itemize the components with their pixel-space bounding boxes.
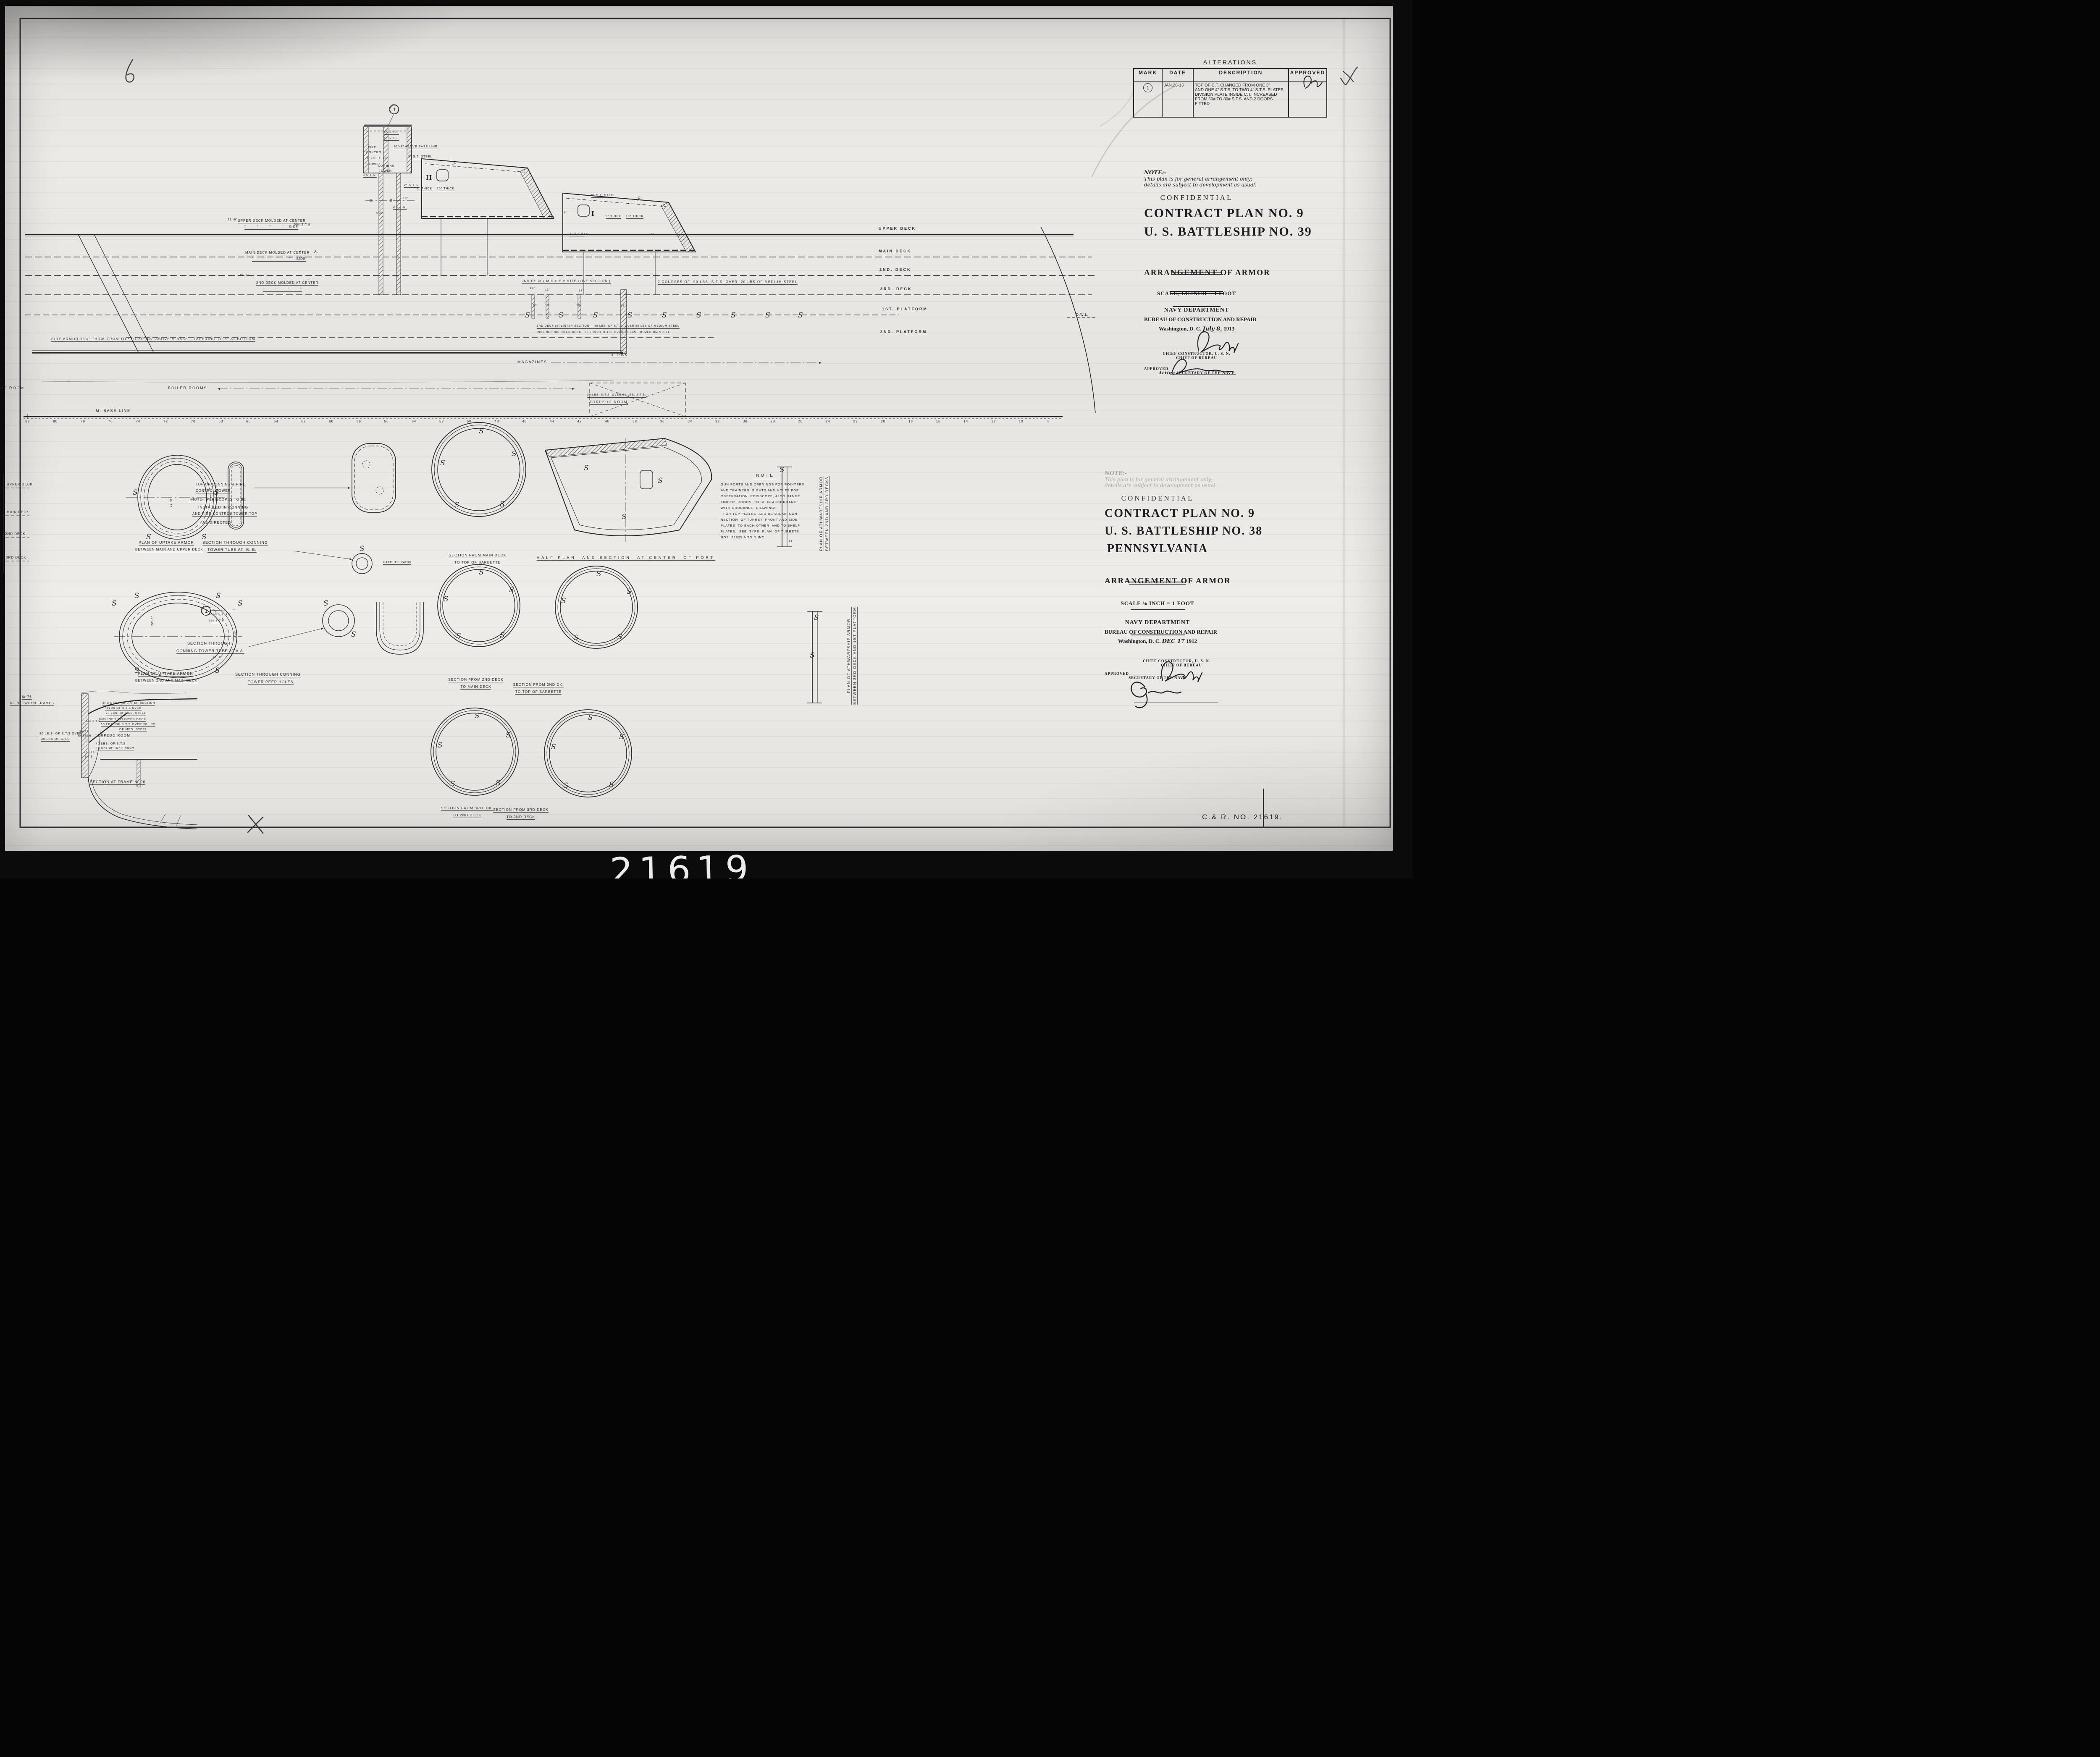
handwritten-x-mark [248,816,263,833]
frame-number: 44 [550,420,554,423]
annotation-label: B. [390,199,394,202]
athwartship-plan-label: PLAN OF ATHWARTSHIP ARMORBETWEEN 3RD DEC… [847,607,858,705]
annotation-label: 3RD DECK (SPLINTER SECTION) 40 LBS. OF S… [537,325,680,329]
alterations-column-header: DESCRIPTION [1193,68,1289,82]
frame-number: 18 [908,420,913,423]
annotation-label: 30 LB.S. OF S.T.S OVER [39,732,82,736]
section-break-symbol: S [450,780,455,788]
place-date: Washington, D. C. DEC 17 1912 [1105,638,1210,645]
annotation-label: 80# S.T.S. [209,620,225,623]
frame-number: 60 [329,420,333,423]
plan-number: CONTRACT PLAN NO. 9 [1144,206,1249,220]
annotation-label: 40 LBS [84,752,95,754]
section-break-symbol: S [731,311,736,320]
alteration-approved [1289,82,1327,117]
annotation-label: TORPEDO ROOM [95,734,131,738]
barbette-section-circle [434,425,523,514]
bureau: BUREAU OF CONSTRUCTION AND REPAIR [1105,629,1210,635]
annotation-label: UPPER DECK MOLDED AT CENTER [238,219,306,223]
annotation-label: " " " " [263,288,302,292]
section-break-symbol: S [696,311,701,320]
deck-label: 1ST. PLATFORM [882,307,928,311]
annotation-label: HATCHES 24x30 [383,561,411,565]
annotation-label: SECTION FROM MAIN DECK [449,553,507,558]
frame-number: 76 [108,420,113,423]
alteration-mark: 1 [1134,82,1162,117]
annotation-label: NT BETWEEN FRAMES [10,702,54,706]
annotation-label: B. [370,199,374,202]
frame-number: 24 [826,420,830,423]
section-break-symbol: S [593,311,598,320]
annotation-label: SIDE ARMOR 13½" THICK FROM TOP TO 26'-4⅞… [51,338,255,342]
annotation-label: BOILER ROOMS [168,386,207,390]
annotation-label: " " " " SIDE [244,226,298,230]
annotation-label: -NOTE- PERISCOPES TO BE [190,498,246,502]
frame-number: 22 [853,420,858,423]
note-line: PLATES. SEE TYPE PLAN OF TURRETS [721,529,810,535]
frame-number: 56 [384,420,389,423]
annotation-label: TO 2ND DECK [507,815,535,820]
annotation-label: 4½" [576,304,582,307]
note-line: GUN PORTS AND OPENINGS FOR POINTERS [721,482,810,488]
annotation-label: 9" THICK [417,187,432,191]
barbette-section-circle [544,710,632,797]
section-break-symbol: S [564,781,569,790]
drawing-linework: SSSSSSSSSSSSSSSSSSSSSSSSSSSSSSSSSSSSSSSS… [0,0,1413,878]
department: NAVY DEPARTMENT [1144,307,1249,314]
barbette-section-circle [433,711,516,793]
alterations-title: ALTERATIONS [1133,59,1327,66]
place-date: Washington, D. C. July 8, 1913 [1144,325,1249,332]
barbette-section-circle [558,569,635,646]
annotation-label: 60 LBS. OF S.T.S OVER 20 LBS [101,723,155,727]
annotation-label: UPPER DECK [7,483,33,486]
ship-number: U. S. BATTLESHIP NO. 38 [1105,524,1210,538]
annotation-label: AND FIRE CONTROL TOWER TOP [192,512,257,517]
annotation-label: 9" THICK [606,215,621,219]
note-line: AND TRAINERS SIGHTS AND HOLES FOR [721,488,810,493]
annotation-label: 2ND DECK [5,532,25,536]
barbette-section-circle [549,715,627,792]
barbette-section-circle [440,567,517,644]
section-break-symbol: S [798,311,803,320]
annotation-label: DYNAMO ROOM [0,386,24,390]
annotation-label: 3 S.T.S. [363,174,377,178]
frame-number: 10 [1019,420,1024,423]
approved-role: Acting SECRETARY OF THE NAVY [1144,371,1249,375]
frame-number: 46 [522,420,527,423]
barbette-section-circle [555,566,638,648]
annotation-label: 30 LBS. S.T.S. OVER 30 LBS. S.T.S. [587,394,646,398]
annotation-label: OF MED. STEEL [119,728,147,732]
annotation-label: 2ND DECK ( MIDDLE PROTECTIVE SECTION ) [522,280,611,284]
note-title: NOTE [753,474,778,479]
annotation-label: TO TOP OF BARBETTE [515,690,562,695]
drawing-title: ARRANGEMENT OF ARMOR [1144,268,1249,278]
section-break-symbol: S [551,743,556,751]
barbette-section-circle [547,712,629,795]
alteration-description: TOP OF C.T. CHANGED FROM ONE 3"AND ONE 4… [1193,82,1289,117]
annotation-label: 5'-0" [376,212,383,215]
frame-number: 36 [660,420,665,423]
annotation-label: CONNING TOWER TUBE AT A.A. [176,649,244,654]
annotation-label: 13" [789,540,794,543]
annotation-label: TORPEDO ROOM [590,401,628,405]
section-break-symbol: S [216,592,221,600]
annotation-label: 2ND DECK MOLDED AT CENTER [256,281,318,286]
annotation-label: 4½" [545,304,551,307]
reference-mark-circle: 1 [202,606,211,616]
section-break-symbol: S [810,651,815,660]
annotation-label: INSTALLED IN CONNING [198,506,248,510]
annotation-label: IN WAY OF TORP. ROOM [97,747,134,750]
annotation-label: 4" S.T.S. [384,131,399,135]
annotation-label: 13" [579,290,584,292]
note-line: NOS. 21625 A TO D INC [721,535,810,540]
section-break-symbol: S [360,545,365,553]
annotation-label: SECTION FROM 2ND DECK [448,678,504,682]
annotation-label: 26'-0" [151,616,154,626]
frame-number: 28 [770,420,775,423]
annotation-label: SECTION THROUGH CONNING [202,541,268,545]
alterations-column-header: DATE [1162,68,1193,82]
annotation-label: SECTION FROM 3RD. DK. [441,806,493,811]
frame-number: 30 [743,420,748,423]
annotation-label: 40'-0" [239,274,249,277]
annotation-label: SECTION THROUGH CONNING [235,673,301,677]
frame-number: 68 [218,420,223,423]
frame-number: 64 [274,420,278,423]
department: NAVY DEPARTMENT [1105,619,1210,626]
section-break-symbol: S [559,311,564,320]
reference-mark-circle: 1 [390,105,399,114]
note-heading: NOTE:- [1144,170,1249,176]
annotation-label: 3RD DECK (SPLINTER SECTION [102,702,155,706]
barbette-section-circle [438,564,520,647]
signature-role: CHIEF CONSTRUCTOR, U. S. N. [1105,659,1210,663]
deck-label: 3RD. DECK [880,287,912,291]
section-break-symbol: S [323,599,328,608]
annotation-label: SECTION THROUGH [187,642,231,646]
section-break-symbol: S [112,599,117,608]
ship-name: PENNSYLVANIA [1105,542,1210,556]
signature-role: CHIEF OF BUREAU [1105,663,1210,667]
annotation-label: PLAN OF UPTAKE ARMOR [138,672,193,677]
note-line: FINDER HOODS, TO BE IN ACCORDANCE [721,499,810,505]
section-break-symbol: S [525,311,530,320]
annotation-label: 2" S.T.S. [570,233,585,236]
note-line: This plan is for general arrangement onl… [1105,477,1210,483]
annotation-label: TOP OF CONNING & FIRE [196,483,246,487]
annotation-label: SECTION FROM 3RD DECK [493,808,549,813]
annotation-label: CONTROL TOWER [196,489,231,493]
barbette-section-circle [436,713,513,790]
frame-number: 82 [26,420,30,423]
annotation-label: 6'-1¼" [209,613,219,616]
approved-role: SECRETARY OF THE NAVY [1105,676,1210,680]
section-break-symbol: S [622,513,627,521]
alterations-column-header: APPROVED [1289,68,1327,82]
annotation-label: M. BASE LINE [96,409,131,413]
annotation-label: 21'-0" [170,497,173,507]
annotation-label: 3RD DECK [6,556,26,559]
annotation-label: INCLINED SPLINTER DECK [99,718,146,722]
annotation-label: CONNING [378,165,395,168]
annotation-label: 30 LBS OF S.T.S [41,738,70,742]
annotation-label: 13" [545,289,550,291]
frame-number: 78 [81,420,85,423]
signature-role: CHIEF CONSTRUCTOR, U. S. N. [1144,351,1249,356]
annotation-label: 13" [530,287,535,290]
annotation-label: TO MAIN DECK [460,685,491,690]
deck-label: 2ND. PLATFORM [880,330,927,334]
approved-label: APPROVED [1105,671,1210,676]
sheet-border [20,18,1390,827]
alterations-column-header: MARK [1134,68,1162,82]
annotation-label: TOWER PEEP HOLES [248,680,294,685]
annotation-label: II [426,174,432,181]
annotation-label: 13" [584,233,589,236]
annotation-label: 6'-1¼" [379,157,388,160]
annotation-label: 50# S.T.S. [294,223,312,227]
annotation-label: MAGAZINES [517,360,547,364]
frame-number: 12 [991,420,996,423]
note-line: FOR TOP PLATES AND DETAIL OF CON- [721,511,810,517]
frame-number: 50 [467,420,472,423]
classification: CONFIDENTIAL [1105,494,1210,503]
annotation-label: 13" [649,233,654,236]
annotation-label: 40LBS OF S.T.S OVER [105,707,142,711]
section-break-symbol: S [496,779,501,787]
annotation-label: TO TOP OF BARBETTE [454,561,501,565]
frame-number: 14 [963,420,968,423]
annotation-label: 6'-1¼" [222,613,231,616]
frame-number: 32 [715,420,720,423]
annotation-label: 4" S.T.S. [384,137,399,141]
annotation-label: D.W.L. [1076,313,1089,317]
annotation-label: AS DIRECTED [202,521,231,525]
section-break-symbol: S [238,599,243,608]
annotation-label: I [591,210,595,218]
section-break-symbol: S [444,595,449,603]
annotation-label: 60# S.T.S [86,721,100,723]
frame-number: 38 [633,420,637,423]
section-break-symbol: S [202,533,207,541]
cr-number: C.& R. NO. 21619. [1202,813,1283,821]
annotation-label: PLAN OF UPTAKE ARMOR [139,541,194,545]
barbette-section-circle [432,422,526,517]
section-break-symbol: S [133,488,138,497]
frame-number: 16 [936,420,941,423]
note-heading: NOTE:- [1105,470,1210,477]
annotation-label: 4'-0" [234,630,237,637]
annotation-label: TOWER TUBE AT B. B. [207,548,257,553]
section-break-symbol: S [765,311,770,320]
annotation-label: SECTION AT FRAME № 26 [90,780,145,785]
frame-number: 72 [163,420,168,423]
bureau: BUREAU OF CONSTRUCTION AND REPAIR [1144,316,1249,323]
barbette-section-circle [431,708,518,795]
annotation-label: MAIN DECK [7,511,29,514]
blueprint-scan-sheet: SSSSSSSSSSSSSSSSSSSSSSSSSSSSSSSSSSSSSSSS… [0,0,1413,878]
annotation-label: A. [314,250,318,254]
annotation-label: BETWEEN MAIN AND UPPER DECK [135,548,203,552]
frame-number: 66 [246,420,251,423]
annotation-label: 10" THICK [437,187,454,191]
annotation-label: 4½" [533,304,538,307]
annotation-label: 20 LBS. OF MED. STEEL [106,712,146,716]
note-line: PLATES TO EACH OTHER AND TO SHELF [721,523,810,529]
section-break-symbol: S [627,311,633,320]
annotation-label: A. [299,250,303,254]
annotation-label: 5" S.T. STEEL [591,194,616,198]
frame-number: 42 [577,420,582,423]
alterations-table: ALTERATIONS MARKDATEDESCRIPTIONAPPROVED … [1133,59,1327,118]
frame-number: 58 [357,420,361,423]
title-block-bb38: NOTE:- This plan is for general arrangem… [1105,470,1210,680]
annotation-label: № 76 [22,695,32,700]
section-break-symbol: S [584,464,589,472]
annotation-label: 13" [403,197,408,200]
signature-approved-38 [1131,682,1181,708]
classification: CONFIDENTIAL [1144,194,1249,202]
frame-number: 62 [302,420,306,423]
annotation-label: FIRE [368,146,376,149]
annotation-label: 81'-3" ABOVE BASE LINE [394,145,438,149]
frame-number: 70 [191,420,196,423]
ship-number: U. S. BATTLESHIP NO. 39 [1144,225,1249,239]
annotation-label: BETWEEN 2ND AND MAIN DECK [135,679,197,683]
alteration-date: JAN.28-13 [1162,82,1193,117]
annotation-label: CONTROL [366,151,383,154]
section-break-symbol: S [215,666,220,675]
deck-label: UPPER DECK [879,227,916,231]
section-break-symbol: S [780,466,785,474]
drawing-number-stamp: 21619 [609,848,754,878]
annotation-label: TOWER [379,170,392,173]
deck-label: MAIN DECK [879,249,911,253]
approved-label: APPROVED [1144,367,1249,371]
note-line: OBSERVATION PERISCOPE, ALSO RANGE [721,493,810,499]
section-break-symbol: S [561,597,566,605]
annotation-label: SECTION FROM 2ND DK. [513,683,564,687]
frame-number: 40 [605,420,609,423]
section-break-symbol: S [814,614,819,622]
section-break-symbol: S [146,533,151,541]
title-block-bb39: NOTE:- This plan is for general arrangem… [1144,170,1249,375]
annotation-label: 5" S.T. STEEL [408,155,433,159]
annotation-label: 21'-6" [228,218,238,221]
annotation-label: 8" THICK [612,354,627,357]
annotation-label: 18'-0" [213,656,223,659]
note-line: NECTION OF TURRET FRONT AND SIDE [721,517,810,523]
note-line: details are subject to development as us… [1105,483,1210,488]
gun-port-note: NOTE GUN PORTS AND OPENINGS FOR POINTERS… [721,474,810,540]
frame-number: 8 [1047,420,1050,423]
deck-label: 2ND. DECK [879,268,911,272]
alterations-row: 1JAN.28-13TOP OF C.T. CHANGED FROM ONE 3… [1134,82,1327,117]
section-break-symbol: S [134,592,139,600]
barbette-section-circle [438,428,520,511]
note-line: This plan is for general arrangement onl… [1144,176,1249,182]
handwritten-checkmark [1341,67,1357,84]
annotation-label: 13" [621,305,626,307]
handwritten-six [126,60,134,82]
annotation-label: HALF PLAN AND SECTION AT CENTER OF PORT [537,556,715,561]
frame-number: 26 [798,420,803,423]
note-line: details are subject to development as us… [1144,182,1249,188]
frame-number: 20 [881,420,885,423]
annotation-label: INCLINED SPLINTER DECK 60 LBS OF S.T.S. … [537,331,670,335]
scale-note: SCALE, 1/8 INCH = 1 FOOT [1144,290,1249,297]
frame-number: 48 [494,420,499,423]
section-break-symbol: S [440,459,445,467]
frame-number: 52 [439,420,444,423]
plan-number: CONTRACT PLAN NO. 9 [1105,507,1210,520]
annotation-label: 2" S.T.S. [404,184,419,188]
frame-number: 34 [688,420,692,423]
section-break-symbol: S [609,781,614,789]
section-break-symbol: S [662,311,667,320]
annotation-label: " " " " SIDE [252,257,306,262]
annotation-label: 6'-1¼" [367,157,377,160]
annotation-label: 10" THICK [626,215,643,219]
annotation-label: TO 2ND DECK [453,813,481,818]
annotation-label: 9" [564,212,567,214]
annotation-label: 40 LBS. OF S.T.S. [96,742,127,746]
frame-number: 54 [412,420,416,423]
drawing-title: ARRANGEMENT OF ARMOR [1105,577,1210,586]
section-break-symbol: S [658,477,663,485]
note-line: WITH ORDNANCE DRAWINGS [721,505,810,511]
annotation-label: 2 S.T.S. [393,206,407,210]
frame-number: 80 [53,420,58,423]
frame-number: 74 [136,420,140,423]
signature-role: CHIEF OF BUREAU [1144,356,1249,360]
section-break-symbol: S [351,630,356,639]
athwartship-plan-label: PLAN OF ATHWARTSHIP ARMORBETWEEN 2ND AND… [819,476,831,551]
annotation-label: 2 COURSES OF 50 LBS. S.T.S. OVER 20 LBS … [658,281,798,285]
scale-note: SCALE ⅛ INCH = 1 FOOT [1105,600,1210,607]
annotation-label: S.T.S [85,756,93,758]
section-break-symbol: S [438,741,443,750]
